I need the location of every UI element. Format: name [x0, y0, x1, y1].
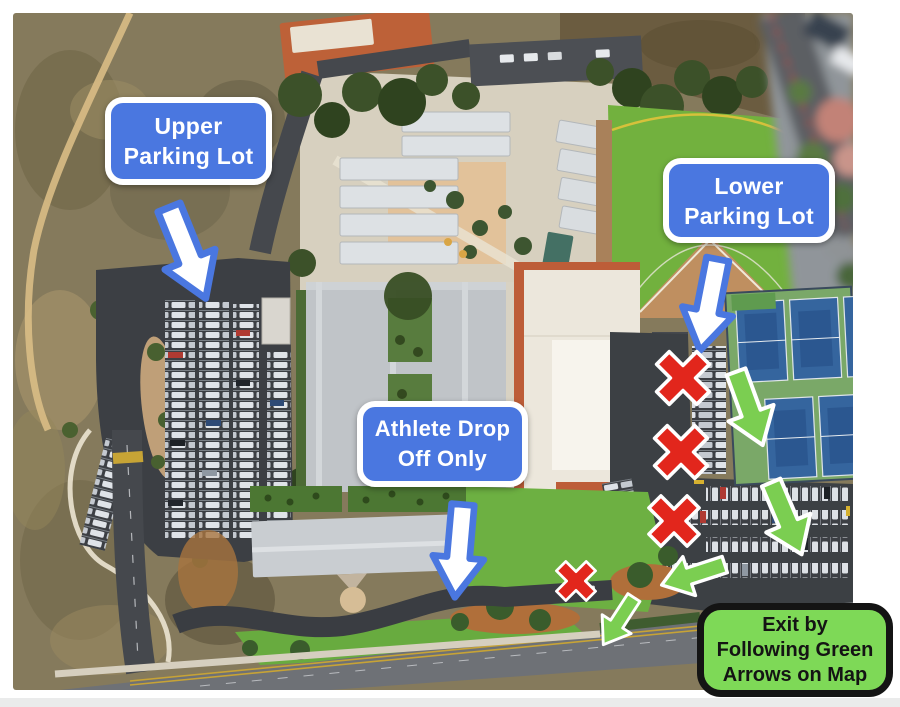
label-line: Exit by [762, 613, 828, 638]
label-line: Lower [714, 171, 783, 201]
red-x-icon [644, 415, 718, 489]
annotated-campus-map: Upper Parking Lot Lower Parking Lot Athl… [0, 0, 900, 707]
red-x-icon [549, 554, 604, 609]
label-line: Following Green [717, 638, 874, 663]
label-line: Athlete Drop [375, 414, 511, 444]
page-bottom-strip [0, 698, 900, 707]
upper-parking-lot-label: Upper Parking Lot [105, 97, 272, 185]
lower-parking-lot-label: Lower Parking Lot [663, 158, 835, 243]
red-x-icon [646, 341, 720, 415]
athlete-drop-off-label: Athlete Drop Off Only [357, 401, 528, 487]
label-line: Parking Lot [684, 201, 814, 231]
red-x-icon [639, 486, 709, 556]
label-line: Off Only [398, 444, 487, 474]
white-arrow-athlete-dropoff-icon [411, 489, 506, 610]
exit-instructions-label: Exit by Following Green Arrows on Map [697, 603, 893, 697]
label-line: Upper [155, 111, 223, 141]
label-line: Parking Lot [124, 141, 254, 171]
label-line: Arrows on Map [723, 663, 867, 688]
